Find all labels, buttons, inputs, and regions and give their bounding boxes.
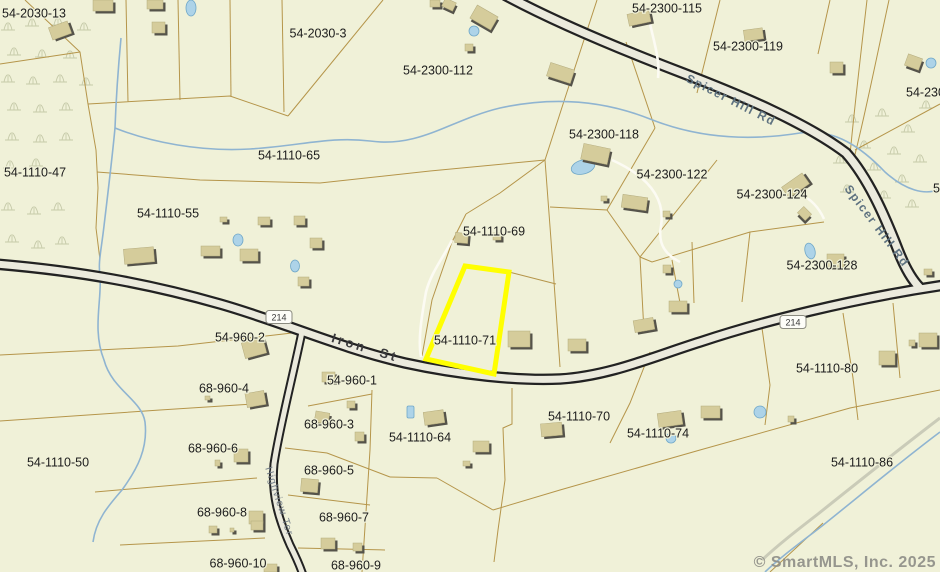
- building-footprint: [353, 543, 362, 551]
- building-footprint: [347, 401, 355, 408]
- parcel-label: 54-1110-50: [27, 456, 89, 470]
- building-footprint: [568, 339, 586, 351]
- parcel-label: 54-1110-71: [434, 334, 496, 348]
- parcel-label: 54-1110-47: [4, 166, 66, 180]
- route-shield-number: 214: [785, 317, 800, 327]
- parcel-label: 54-1110-65: [258, 149, 320, 163]
- building-footprint: [240, 249, 258, 261]
- parcel-label: 54-1110-80: [796, 362, 858, 376]
- building-footprint: [473, 441, 489, 452]
- parcel-label: 54-2300-119: [713, 40, 783, 54]
- pond: [754, 406, 766, 418]
- parcel-label: 68-960-4: [199, 382, 249, 396]
- building-footprint: [230, 528, 234, 532]
- parcel-label: 5: [933, 182, 940, 196]
- building-footprint: [430, 0, 440, 7]
- building-footprint: [294, 216, 305, 225]
- route-shield-number: 214: [271, 312, 286, 322]
- building-footprint: [879, 351, 895, 365]
- building-footprint: [300, 478, 318, 492]
- parcel-label: 68-960-5: [304, 464, 354, 478]
- pond: [186, 0, 196, 16]
- building-footprint: [209, 526, 217, 533]
- building-footprint: [298, 277, 309, 286]
- building-footprint: [657, 410, 683, 427]
- building-footprint: [220, 217, 227, 222]
- building-footprint: [205, 396, 210, 400]
- building-footprint: [465, 44, 473, 51]
- parcel-label: 54-2030-3: [290, 27, 347, 41]
- map-canvas[interactable]: 214214 54-2030-1354-2030-354-2300-11254-…: [0, 0, 940, 572]
- building-footprint: [215, 460, 220, 466]
- parcel-label: 54-2300-118: [569, 128, 639, 142]
- parcel-map-svg: 214214 54-2030-1354-2030-354-2300-11254-…: [0, 0, 940, 572]
- parcel-label: 54-2300-115: [632, 2, 702, 16]
- pool: [407, 406, 414, 418]
- pond: [233, 234, 243, 246]
- watermark-text: © SmartMLS, Inc. 2025: [754, 554, 936, 571]
- building-footprint: [123, 247, 154, 265]
- parcel-label: 68-960-7: [319, 511, 369, 525]
- building-footprint: [310, 238, 322, 248]
- parcel-label: 54-1110-64: [389, 431, 451, 445]
- building-footprint: [701, 406, 720, 418]
- parcel-label: 54-1110-55: [137, 207, 199, 221]
- parcel-label: 68-960-8: [197, 506, 247, 520]
- building-footprint: [669, 301, 687, 312]
- pond: [291, 260, 300, 272]
- parcel-label: 54-2300-122: [637, 168, 708, 182]
- parcel-label: 54-1110-70: [548, 410, 610, 424]
- building-footprint: [830, 62, 843, 73]
- building-footprint: [540, 422, 562, 437]
- building-footprint: [788, 416, 794, 422]
- parcel-label: 54-1110-74: [627, 427, 689, 441]
- building-footprint: [152, 22, 165, 33]
- building-footprint: [663, 265, 671, 273]
- building-footprint: [258, 217, 270, 225]
- building-footprint: [463, 461, 470, 466]
- pond: [469, 26, 479, 36]
- building-footprint: [147, 0, 163, 9]
- route-214-shield: 214: [266, 311, 292, 324]
- parcel-label: 54-960-2: [215, 331, 265, 345]
- parcel-label: 54-230: [906, 86, 940, 100]
- parcel-label: 68-960-10: [210, 557, 267, 571]
- pond: [926, 58, 936, 68]
- building-footprint: [251, 521, 263, 530]
- building-footprint: [601, 196, 607, 201]
- parcel-label: 54-1110-86: [831, 456, 893, 470]
- route-214-shield: 214: [780, 316, 806, 329]
- building-footprint: [321, 538, 335, 549]
- building-footprint: [423, 410, 445, 426]
- pond: [674, 280, 682, 288]
- building-footprint: [919, 333, 937, 347]
- parcel-label: 54-2300-124: [737, 188, 808, 202]
- building-footprint: [924, 269, 932, 275]
- parcel-label: 54-960-1: [327, 374, 377, 388]
- parcel-label: 54-1110-69: [463, 225, 525, 239]
- parcel-label: 54-2300-128: [787, 259, 858, 273]
- building-footprint: [508, 331, 530, 347]
- building-footprint: [663, 211, 670, 217]
- parcel-label: 68-960-3: [304, 418, 354, 432]
- parcel-label: 68-960-9: [331, 559, 381, 572]
- parcel-label: 54-2030-13: [2, 7, 66, 21]
- parcel-label: 54-2300-112: [403, 64, 473, 78]
- parcel-label: 68-960-6: [188, 442, 238, 456]
- building-footprint: [355, 432, 364, 441]
- building-footprint: [201, 246, 220, 256]
- building-footprint: [909, 340, 915, 346]
- building-footprint: [93, 0, 113, 11]
